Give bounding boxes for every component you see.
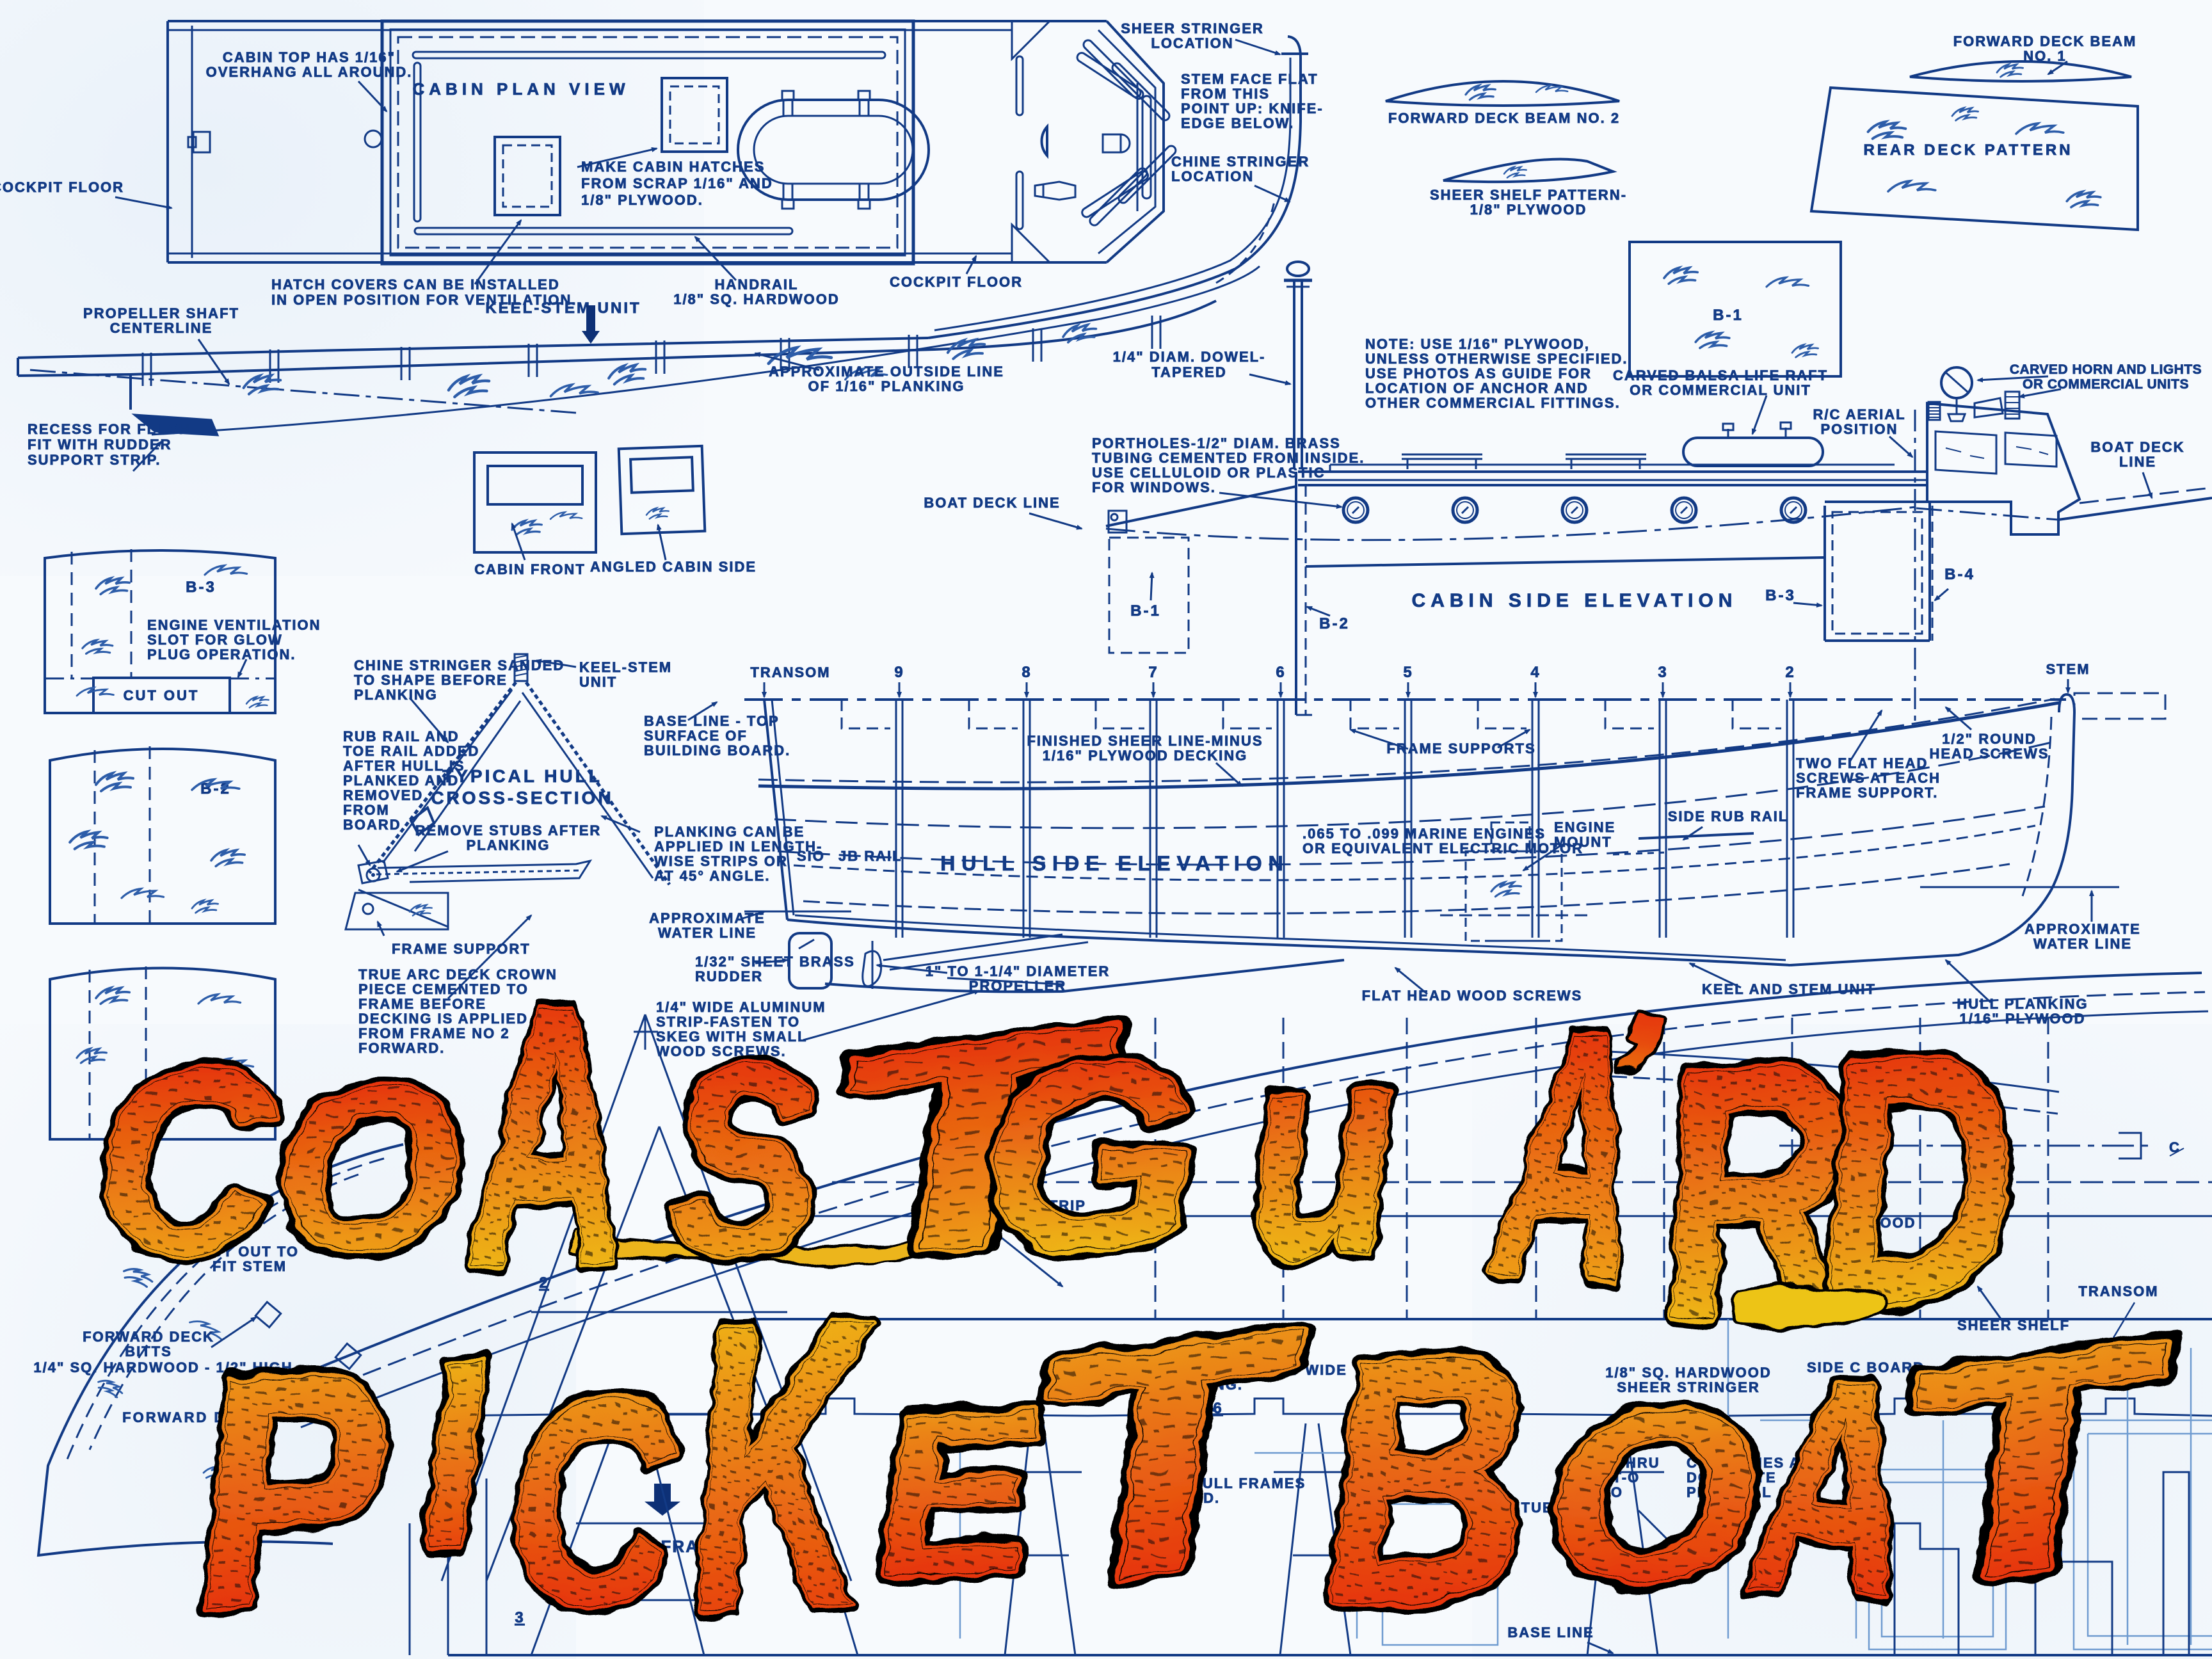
svg-text:LOCATION: LOCATION	[1171, 168, 1254, 184]
svg-text:REMOVE STUBS AFTER: REMOVE STUBS AFTER	[415, 822, 602, 838]
svg-text:POSITION: POSITION	[1820, 421, 1898, 437]
svg-text:G: G	[976, 1005, 1203, 1309]
svg-text:5: 5	[1403, 664, 1413, 681]
svg-text:WISE STRIPS OR: WISE STRIPS OR	[654, 853, 788, 869]
svg-text:TUBING CEMENTED FROM INSIDE.: TUBING CEMENTED FROM INSIDE.	[1092, 450, 1365, 466]
svg-text:OVERHANG ALL AROUND.: OVERHANG ALL AROUND.	[206, 64, 413, 80]
svg-text:B-3: B-3	[186, 579, 216, 596]
svg-text:C: C	[502, 1334, 683, 1659]
svg-text:AT 45° ANGLE.: AT 45° ANGLE.	[654, 868, 770, 884]
svg-text:1/4" DIAM. DOWEL-: 1/4" DIAM. DOWEL-	[1113, 349, 1266, 365]
svg-text:APPROXIMATE: APPROXIMATE	[2024, 921, 2141, 937]
svg-text:CABIN TOP HAS 1/16": CABIN TOP HAS 1/16"	[223, 49, 396, 65]
svg-text:B-1: B-1	[1130, 602, 1161, 620]
svg-text:SIDE RUB RAIL: SIDE RUB RAIL	[1668, 808, 1789, 824]
svg-text:SURFACE OF: SURFACE OF	[644, 728, 748, 744]
svg-text:BOAT DECK: BOAT DECK	[2090, 439, 2184, 455]
svg-text:BITTS: BITTS	[125, 1343, 172, 1359]
svg-text:OF 1/16" PLANKING: OF 1/16" PLANKING	[808, 378, 965, 394]
svg-text:SCREWS AT EACH: SCREWS AT EACH	[1796, 770, 1941, 786]
svg-text:CARVED BALSA LIFE RAFT: CARVED BALSA LIFE RAFT	[1613, 367, 1828, 383]
svg-text:TYPICAL HULL: TYPICAL HULL	[442, 766, 602, 786]
svg-text:USE CELLULOID OR PLASTIC: USE CELLULOID OR PLASTIC	[1092, 465, 1326, 481]
svg-text:TO SHAPE BEFORE: TO SHAPE BEFORE	[354, 672, 508, 688]
svg-text:LOCATION: LOCATION	[1151, 35, 1233, 51]
svg-text:COCKPIT FLOOR: COCKPIT FLOOR	[890, 274, 1023, 290]
svg-text:O: O	[271, 1036, 463, 1301]
svg-text:1/2" ROUND: 1/2" ROUND	[1942, 731, 2037, 747]
svg-text:FRAME SUPPORT.: FRAME SUPPORT.	[1796, 785, 1938, 801]
svg-text:ENGINE VENTILATION: ENGINE VENTILATION	[147, 617, 321, 633]
svg-text:B-3: B-3	[1765, 587, 1796, 604]
svg-text:TAPERED: TAPERED	[1151, 364, 1227, 380]
svg-text:KEEL-STEM UNIT: KEEL-STEM UNIT	[485, 300, 641, 317]
svg-text:2: 2	[1785, 664, 1795, 681]
svg-text:OR COMMERCIAL UNITS: OR COMMERCIAL UNITS	[2023, 377, 2189, 392]
svg-text:RUB RAIL AND: RUB RAIL AND	[343, 728, 460, 744]
svg-text:HULL SIDE ELEVATION: HULL SIDE ELEVATION	[940, 852, 1290, 875]
svg-text:REMOVED: REMOVED	[343, 787, 423, 803]
svg-text:SUPPORT STRIP.: SUPPORT STRIP.	[28, 452, 161, 468]
svg-text:JB RAIL: JB RAIL	[838, 848, 902, 864]
svg-text:CABIN FRONT: CABIN FRONT	[474, 561, 586, 577]
svg-text:SHEER STRINGER: SHEER STRINGER	[1121, 20, 1264, 36]
svg-text:RECESS FOR FLUSH: RECESS FOR FLUSH	[28, 421, 190, 437]
svg-text:4: 4	[1530, 664, 1540, 681]
svg-text:MOUNT: MOUNT	[1554, 834, 1612, 850]
svg-text:1/8" SQ. HARDWOOD: 1/8" SQ. HARDWOOD	[673, 291, 840, 307]
svg-text:NO. 1: NO. 1	[2023, 48, 2066, 64]
svg-text:CARVED HORN AND LIGHTS: CARVED HORN AND LIGHTS	[2010, 362, 2202, 377]
svg-text:POINT UP: KNIFE-: POINT UP: KNIFE-	[1181, 100, 1324, 116]
svg-text:TRANSOM: TRANSOM	[750, 664, 830, 680]
svg-text:B-4: B-4	[1944, 566, 1975, 583]
svg-text:STEM: STEM	[2046, 661, 2090, 677]
svg-text:CENTERLINE: CENTERLINE	[110, 320, 213, 336]
svg-text:PROPELLER SHAFT: PROPELLER SHAFT	[83, 305, 239, 321]
svg-text:A: A	[449, 928, 635, 1344]
svg-text:CHINE STRINGER SANDED: CHINE STRINGER SANDED	[354, 657, 565, 673]
svg-text:FORWARD DECK BEAM NO. 2: FORWARD DECK BEAM NO. 2	[1388, 110, 1620, 126]
svg-text:STEM FACE FLAT: STEM FACE FLAT	[1181, 71, 1318, 87]
svg-text:O: O	[1542, 1358, 1762, 1635]
svg-text:PLANKING: PLANKING	[354, 687, 438, 703]
svg-text:BOARD: BOARD	[343, 817, 401, 833]
svg-text:BOAT DECK LINE: BOAT DECK LINE	[924, 495, 1060, 511]
svg-text:FIT WITH RUDDER: FIT WITH RUDDER	[28, 437, 172, 453]
svg-text:TWO FLAT HEAD: TWO FLAT HEAD	[1796, 755, 1928, 771]
svg-text:SHEER SHELF PATTERN-: SHEER SHELF PATTERN-	[1430, 187, 1627, 203]
svg-text:.065 TO .099 MARINE ENGINES: .065 TO .099 MARINE ENGINES	[1302, 826, 1546, 842]
svg-text:CABIN PLAN VIEW: CABIN PLAN VIEW	[413, 79, 630, 99]
svg-text:ANGLED CABIN SIDE: ANGLED CABIN SIDE	[590, 559, 757, 575]
svg-text:HEAD SCREWS: HEAD SCREWS	[1929, 746, 2049, 762]
svg-text:FINISHED SHEER LINE-MINUS: FINISHED SHEER LINE-MINUS	[1027, 733, 1263, 749]
svg-text:USE PHOTOS AS GUIDE FOR: USE PHOTOS AS GUIDE FOR	[1365, 365, 1592, 381]
svg-text:HATCH COVERS CAN BE INSTALLED: HATCH COVERS CAN BE INSTALLED	[271, 276, 560, 293]
svg-text:MAKE CABIN HATCHES: MAKE CABIN HATCHES	[581, 159, 765, 175]
svg-text:FRAME SUPPORTS: FRAME SUPPORTS	[1386, 741, 1535, 757]
svg-text:APPROXIMATE: APPROXIMATE	[649, 910, 765, 926]
svg-text:8: 8	[1022, 664, 1031, 681]
svg-text:SIO: SIO	[797, 848, 825, 864]
svg-text:PLANKING CAN BE: PLANKING CAN BE	[654, 824, 805, 840]
svg-text:FOR WINDOWS.: FOR WINDOWS.	[1092, 479, 1216, 495]
svg-text:REAR DECK PATTERN: REAR DECK PATTERN	[1863, 141, 2072, 159]
svg-text:7: 7	[1148, 664, 1158, 681]
svg-text:CROSS-SECTION: CROSS-SECTION	[431, 788, 613, 808]
svg-text:LOCATION OF ANCHOR AND: LOCATION OF ANCHOR AND	[1365, 380, 1589, 396]
svg-text:FROM SCRAP 1/16" AND: FROM SCRAP 1/16" AND	[581, 175, 773, 191]
svg-text:PORTHOLES-1/2" DIAM. BRASS: PORTHOLES-1/2" DIAM. BRASS	[1092, 435, 1341, 451]
svg-text:UNIT: UNIT	[579, 674, 617, 690]
svg-text:B-1: B-1	[1713, 307, 1743, 324]
svg-text:KEEL-STEM: KEEL-STEM	[579, 659, 672, 675]
svg-text:OR EQUIVALENT ELECTRIC MOTOR: OR EQUIVALENT ELECTRIC MOTOR	[1302, 840, 1583, 856]
svg-text:BASE LINE - TOP: BASE LINE - TOP	[644, 713, 780, 729]
svg-text:FROM: FROM	[343, 802, 390, 818]
svg-text:ENGINE: ENGINE	[1554, 819, 1615, 835]
svg-text:C: C	[92, 1011, 281, 1313]
svg-text:WATER LINE: WATER LINE	[2033, 936, 2132, 952]
svg-text:3: 3	[1658, 664, 1667, 681]
svg-text:B: B	[1317, 1280, 1533, 1659]
svg-text:CABIN SIDE ELEVATION: CABIN SIDE ELEVATION	[1412, 590, 1738, 611]
svg-text:LINE: LINE	[2119, 454, 2156, 470]
svg-text:P: P	[186, 1301, 395, 1659]
svg-text:RUDDER: RUDDER	[695, 968, 763, 984]
svg-text:BUILDING BOARD.: BUILDING BOARD.	[644, 742, 790, 758]
svg-text:1/8" PLYWOOD: 1/8" PLYWOOD	[1470, 202, 1587, 218]
svg-text:FORWARD DECK BEAM: FORWARD DECK BEAM	[1953, 33, 2137, 49]
svg-text:PLANKING: PLANKING	[467, 837, 550, 853]
svg-text:FROM THIS: FROM THIS	[1181, 86, 1270, 102]
svg-text:COCKPIT FLOOR: COCKPIT FLOOR	[0, 179, 124, 195]
svg-text:CUT OUT: CUT OUT	[124, 687, 200, 703]
svg-text:NOTE: USE 1/16" PLYWOOD,: NOTE: USE 1/16" PLYWOOD,	[1365, 336, 1590, 352]
svg-text:EDGE BELOW.: EDGE BELOW.	[1181, 115, 1294, 131]
svg-text:PLANKED AND: PLANKED AND	[343, 773, 459, 789]
svg-text:B-2: B-2	[1319, 615, 1350, 632]
svg-text:WATER LINE: WATER LINE	[658, 925, 757, 941]
svg-text:SLOT FOR GLOW: SLOT FOR GLOW	[147, 632, 283, 648]
svg-text:1/16" PLYWOOD DECKING: 1/16" PLYWOOD DECKING	[1043, 748, 1248, 764]
svg-text:HANDRAIL: HANDRAIL	[715, 276, 799, 293]
svg-text:R/C AERIAL: R/C AERIAL	[1813, 406, 1905, 422]
svg-text:TOE RAIL ADDED: TOE RAIL ADDED	[343, 743, 479, 759]
svg-text:6: 6	[1276, 664, 1285, 681]
svg-text:OTHER COMMERCIAL FITTINGS.: OTHER COMMERCIAL FITTINGS.	[1365, 395, 1621, 411]
svg-text:UNLESS OTHERWISE SPECIFIED.: UNLESS OTHERWISE SPECIFIED.	[1365, 351, 1628, 367]
svg-text:PLUG OPERATION.: PLUG OPERATION.	[147, 646, 296, 662]
svg-text:OR COMMERCIAL UNIT: OR COMMERCIAL UNIT	[1630, 382, 1811, 398]
svg-text:CHINE STRINGER: CHINE STRINGER	[1171, 154, 1310, 170]
svg-text:9: 9	[894, 664, 904, 681]
svg-text:1/8" PLYWOOD.: 1/8" PLYWOOD.	[581, 192, 703, 208]
